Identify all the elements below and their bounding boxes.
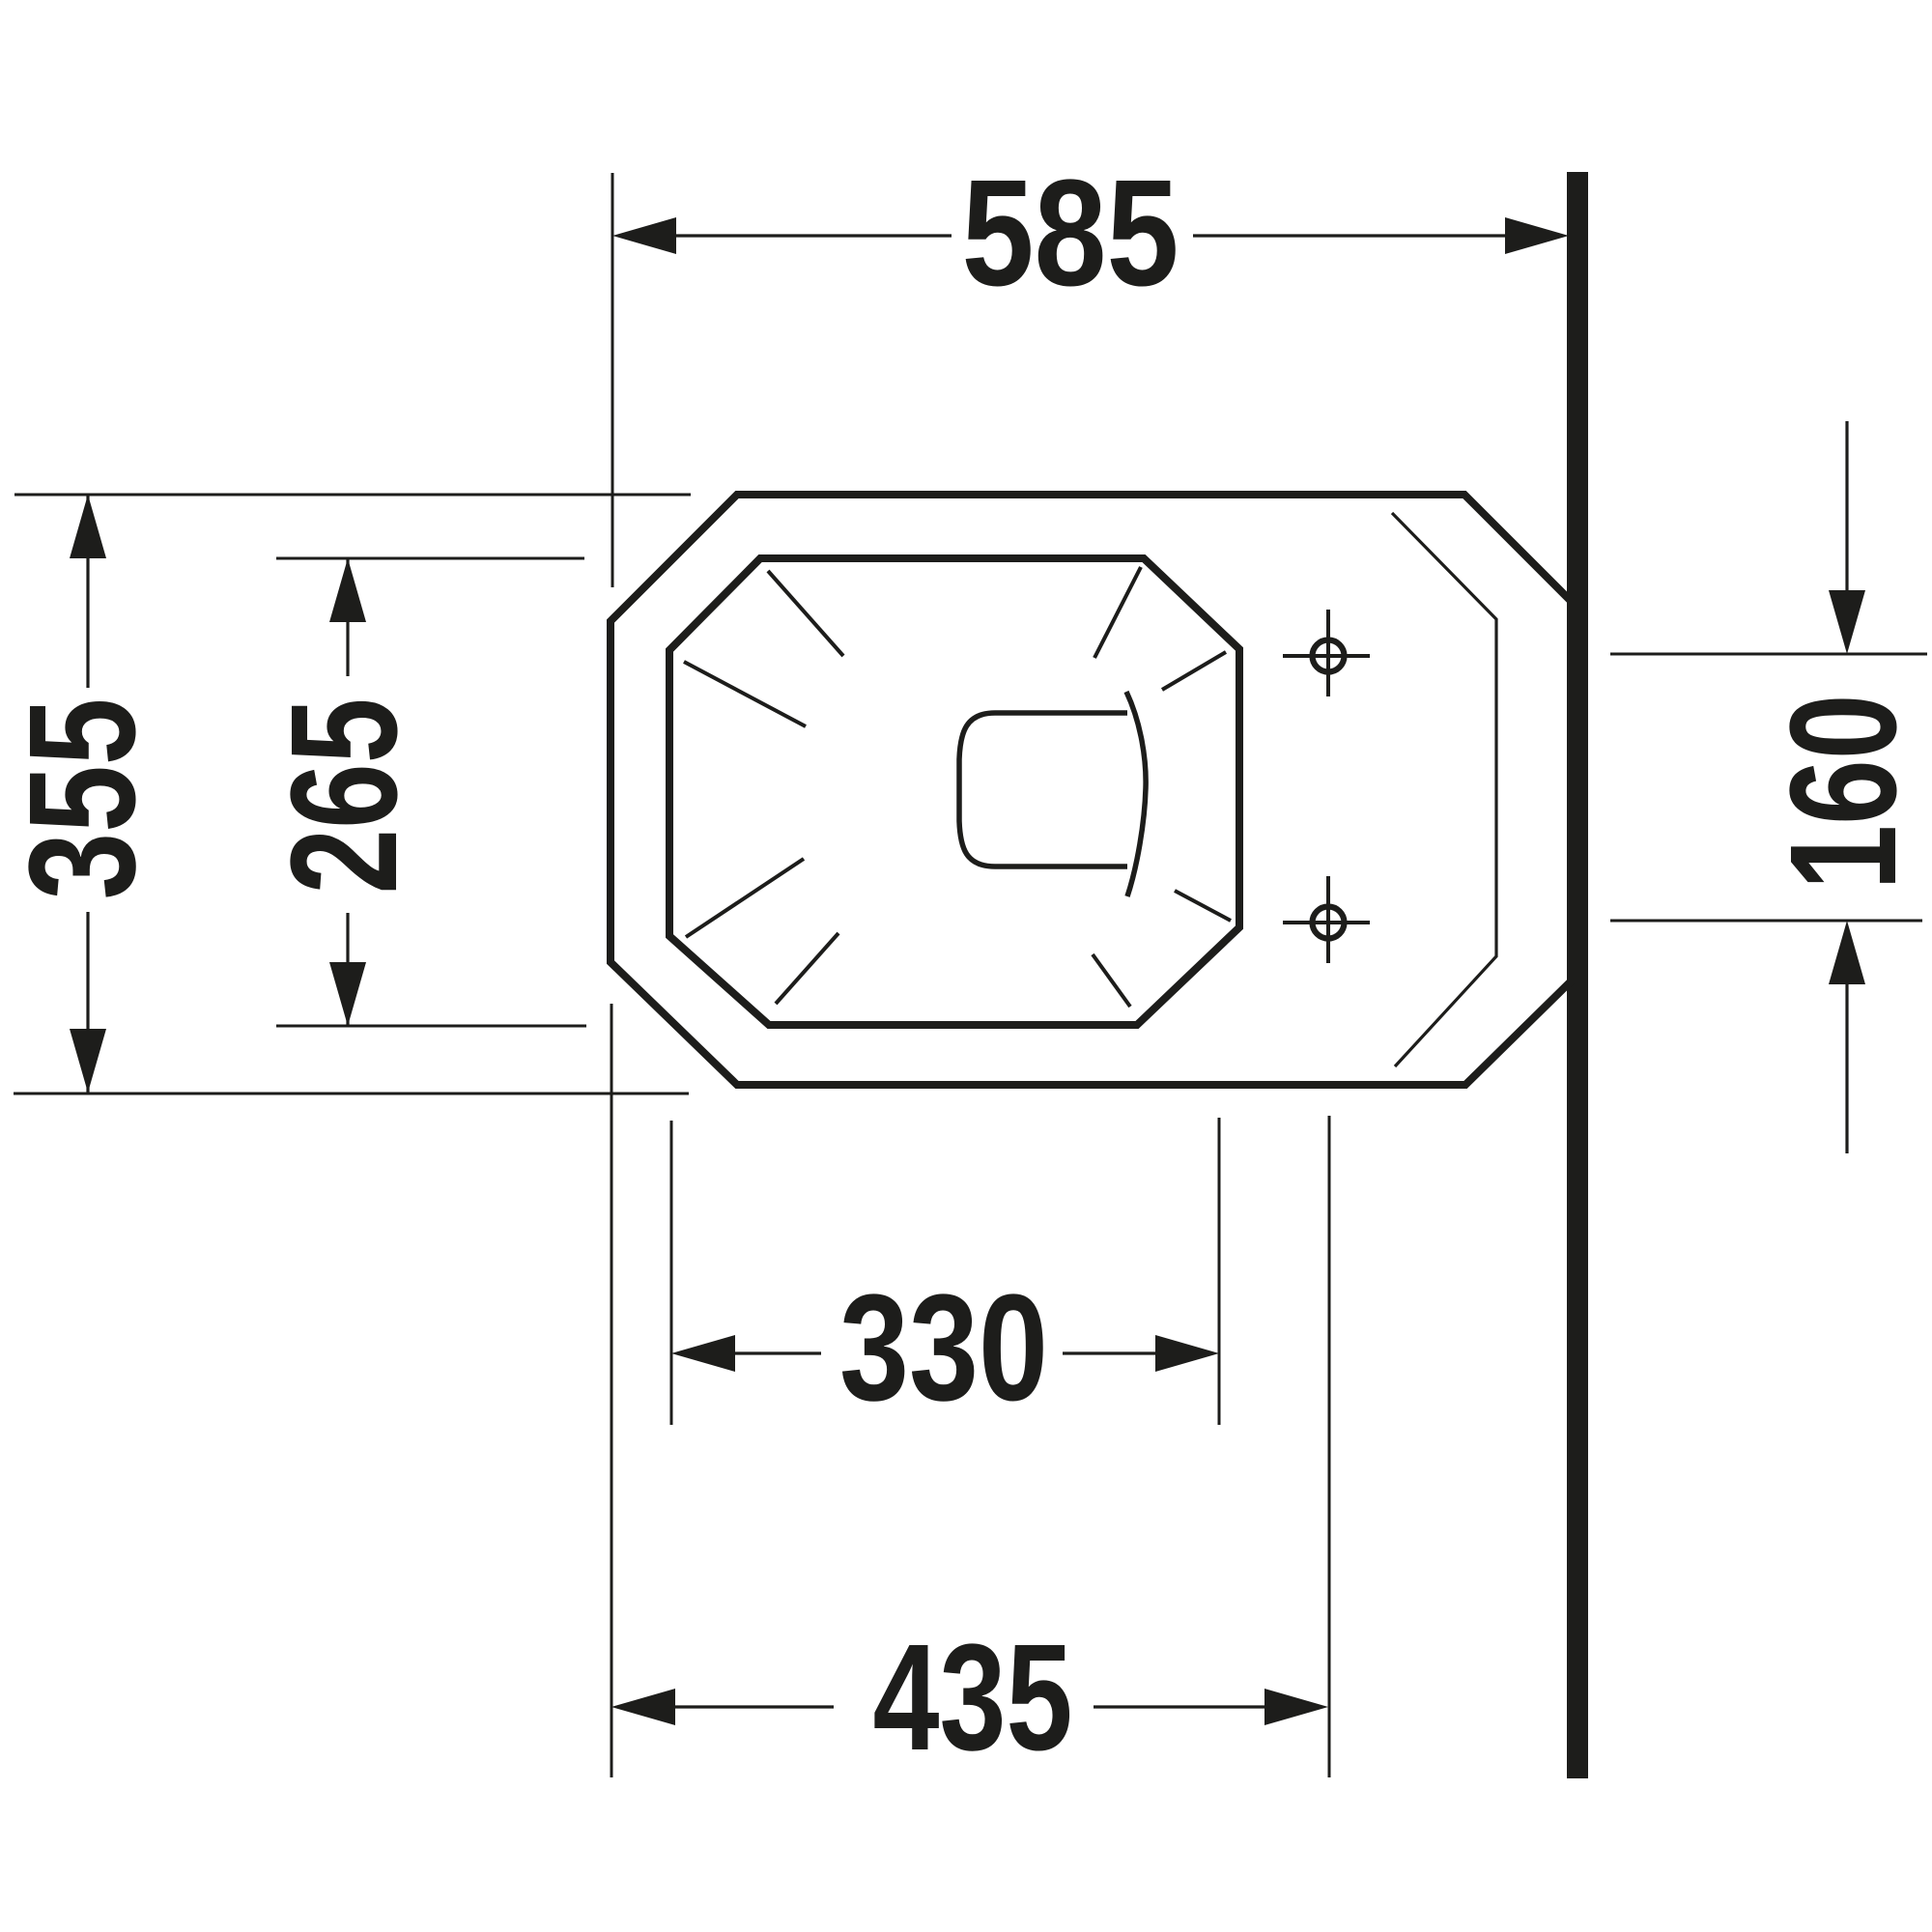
svg-text:160: 160 <box>1759 695 1928 891</box>
svg-text:355: 355 <box>0 698 167 900</box>
svg-text:330: 330 <box>839 1264 1048 1433</box>
svg-text:265: 265 <box>260 698 429 895</box>
svg-text:435: 435 <box>873 1613 1073 1782</box>
svg-text:585: 585 <box>962 149 1179 318</box>
